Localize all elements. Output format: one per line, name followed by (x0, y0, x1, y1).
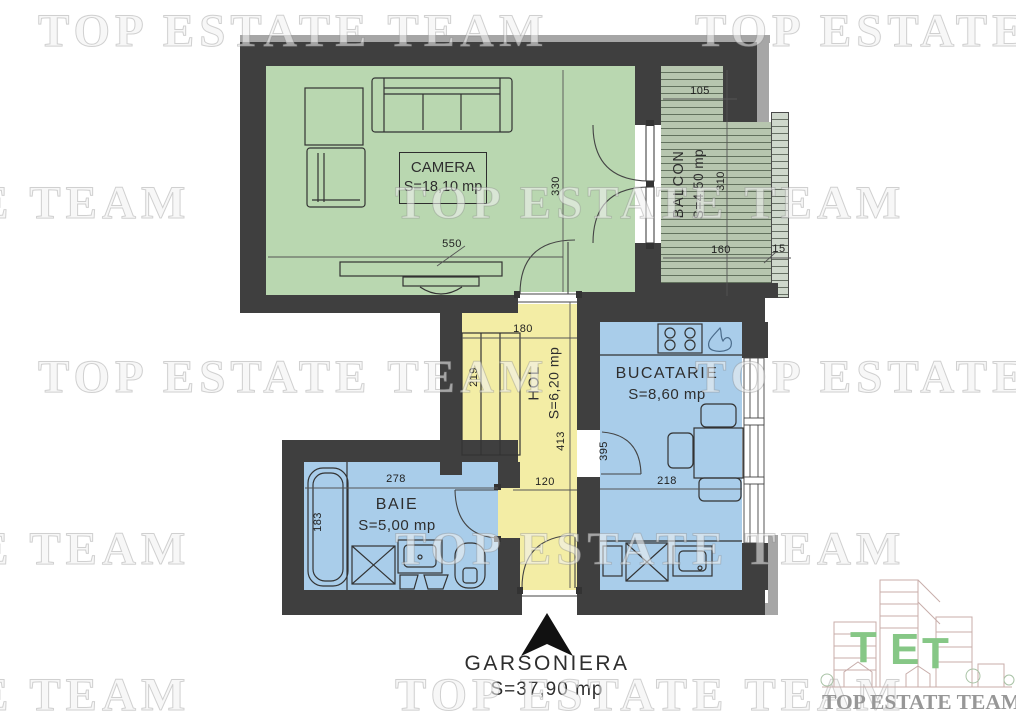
hol-name: HOL (524, 347, 544, 420)
wall-bucatarie-right-lower (742, 543, 768, 590)
dim-baie-width: 278 (386, 473, 406, 485)
wall-bucatarie-left-upper (577, 322, 600, 430)
hol-label: HOL S=6,20 mp (524, 347, 563, 420)
wall-camera-right-upper (635, 66, 661, 125)
floor-plan-canvas: CAMERA S=18,10 mp BALCON S=4,50 mp HOL S… (0, 0, 1016, 720)
dim-balcon-width: 160 (711, 244, 731, 256)
wall-left (240, 42, 266, 313)
dim-camera-width: 550 (442, 238, 462, 250)
wall-bucatarie-left-lower (577, 477, 600, 590)
dim-balcon-height: 310 (715, 171, 727, 191)
dim-balcon-niche: 105 (690, 85, 710, 97)
dim-baie-height: 183 (312, 512, 324, 532)
logo-caption: TOP ESTATE TEAM (822, 690, 1016, 715)
bucatarie-name: BUCATARIE (616, 363, 719, 385)
balcon-railing (771, 112, 789, 298)
camera-area: S=18,10 mp (400, 178, 486, 198)
balcon-label: BALCON S=4,50 mp (670, 149, 708, 219)
watermark-text: TOP ESTATE TEAM (0, 668, 190, 720)
dim-bucatarie-width: 218 (657, 475, 677, 487)
hol-area: S=6,20 mp (545, 347, 564, 420)
plan-total-area: S=37,90 mp (491, 679, 604, 701)
kitchen-window (744, 358, 764, 543)
balcon-name: BALCON (670, 149, 690, 219)
wall-balcon-niche-step (723, 66, 757, 122)
dim-hol-closet: 219 (468, 367, 480, 387)
wall-baie-left (282, 440, 304, 615)
baie-name: BAIE (358, 494, 435, 516)
camera-label-box: CAMERA S=18,10 mp (399, 152, 487, 204)
dim-balcon-rail: 15 (772, 243, 785, 255)
wall-camera-bottom (240, 295, 518, 313)
balcon-area: S=4,50 mp (690, 149, 708, 219)
dim-hol-top: 180 (513, 323, 533, 335)
bucatarie-area: S=8,60 mp (616, 385, 719, 405)
wall-baie-hol-divider-lower (498, 538, 520, 590)
logo-letter-e: E (890, 625, 919, 674)
camera-name: CAMERA (400, 158, 486, 178)
wall-baie-hol-divider-upper (498, 462, 520, 488)
dim-camera-height: 330 (550, 176, 562, 196)
bucatarie-label: BUCATARIE S=8,60 mp (616, 363, 719, 405)
dim-hol-width: 120 (535, 476, 555, 488)
logo-letter-t2: T (922, 629, 949, 678)
wall-bucatarie-top (577, 292, 765, 322)
dim-bucatarie-height: 395 (598, 441, 610, 461)
watermark-text: TOP ESTATE TEAM (695, 350, 1016, 404)
agency-logo: T E T (818, 572, 1016, 690)
baie-label: BAIE S=5,00 mp (358, 494, 435, 536)
baie-area: S=5,00 mp (358, 516, 435, 536)
entrance-arrow (521, 613, 573, 656)
wall-baie-top (282, 440, 518, 462)
wall-shadow-top-right (757, 35, 769, 130)
plan-title: GARSONIERA (464, 652, 629, 676)
wall-bottom-left (282, 590, 522, 615)
wall-bottom-right (577, 590, 765, 615)
wall-shadow-bottom-right (768, 535, 778, 615)
watermark-text: TOP ESTATE TEAM (0, 176, 190, 230)
wall-bucatarie-right-upper (742, 322, 768, 358)
logo-letter-t1: T (850, 623, 877, 672)
dim-hol-height: 413 (555, 431, 567, 451)
wall-top (240, 42, 757, 66)
watermark-text: TOP ESTATE TEAM (0, 522, 190, 576)
